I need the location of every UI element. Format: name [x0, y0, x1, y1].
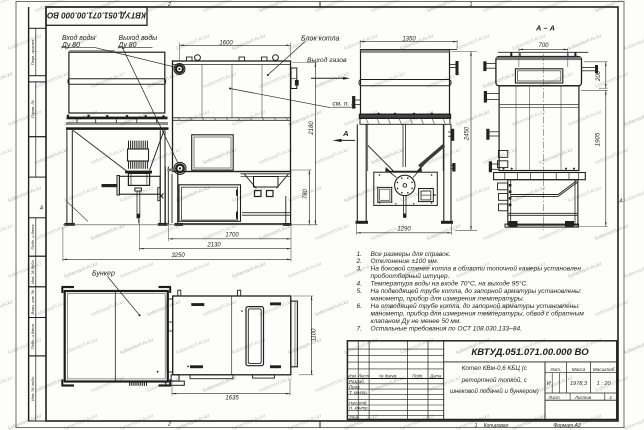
svg-text:Пров.: Пров.	[349, 385, 361, 390]
svg-text:Лист: Лист	[547, 395, 560, 400]
svg-text:1290: 1290	[397, 227, 411, 233]
svg-text:1100: 1100	[312, 328, 318, 342]
svg-text:Формат А3: Формат А3	[553, 423, 581, 429]
svg-text:Инв. № подл.: Инв. № подл.	[30, 376, 35, 401]
svg-text:2: 2	[167, 422, 171, 428]
svg-text:Температура воды на входе 70°С: Температура воды на входе 70°С, на выход…	[371, 280, 529, 288]
svg-text:Лит.: Лит.	[549, 367, 561, 372]
svg-text:1: 1	[469, 2, 472, 8]
svg-text:700: 700	[538, 43, 549, 49]
svg-text:780: 780	[303, 188, 309, 199]
svg-text:1 : 20: 1 : 20	[597, 381, 612, 387]
svg-text:пробоотборный штуцер.: пробоотборный штуцер.	[371, 272, 450, 280]
svg-text:1905: 1905	[596, 132, 602, 146]
svg-text:Справ. №: Справ. №	[30, 100, 35, 119]
svg-text:Инв. № дубл.: Инв. № дубл.	[30, 259, 35, 284]
svg-text:И: И	[547, 381, 551, 387]
svg-text:2180: 2180	[309, 121, 315, 136]
svg-text:Дата: Дата	[429, 373, 442, 378]
svg-text:1350: 1350	[402, 37, 416, 43]
svg-text:2: 2	[167, 2, 171, 8]
svg-text:№ докум.: № докум.	[379, 373, 397, 378]
svg-text:1635: 1635	[225, 396, 239, 402]
svg-text:На отводящей трубе котла, до з: На отводящей трубе котла, до запорной ар…	[371, 302, 581, 310]
svg-text:Котел КВм-0,6 КБЦ (с: Котел КВм-0,6 КБЦ (с	[462, 365, 528, 372]
svg-text:1.: 1.	[357, 251, 363, 258]
svg-text:А – А: А – А	[535, 23, 555, 32]
svg-text:Утв.: Утв.	[349, 415, 359, 420]
svg-text:6.: 6.	[357, 303, 363, 310]
svg-text:шнековой подачей и бункером): шнековой подачей и бункером)	[450, 388, 539, 395]
svg-text:КВТУД.051.071.00.000 ВО: КВТУД.051.071.00.000 ВО	[46, 10, 146, 19]
svg-text:Отклонение ±100 мм.: Отклонение ±100 мм.	[371, 258, 439, 265]
svg-text:А: А	[39, 206, 44, 212]
svg-text:Разраб.: Разраб.	[349, 379, 365, 384]
svg-text:Листов: Листов	[574, 395, 592, 400]
svg-text:2130: 2130	[206, 242, 221, 248]
svg-text:4.: 4.	[357, 281, 363, 288]
svg-text:5.: 5.	[357, 288, 363, 295]
svg-text:3250: 3250	[171, 253, 185, 259]
svg-text:Масса: Масса	[572, 367, 586, 372]
svg-text:манометр, прибор для измерения: манометр, прибор для измерения температу…	[371, 309, 585, 317]
svg-text:Бункер: Бункер	[92, 270, 115, 277]
svg-text:Масштаб: Масштаб	[593, 367, 615, 372]
svg-text:Лист: Лист	[357, 373, 369, 378]
svg-text:Остальные требования по ОСТ 10: Остальные требования по ОСТ 108.030.133–…	[371, 324, 523, 332]
svg-text:А: А	[618, 199, 623, 205]
svg-text:2.: 2.	[356, 258, 363, 265]
svg-text:1: 1	[474, 423, 477, 429]
svg-text:Подп. и дата: Подп. и дата	[30, 224, 35, 250]
svg-text:Блок котла: Блок котла	[301, 35, 339, 42]
svg-text:1978,3: 1978,3	[570, 381, 588, 387]
svg-text:Подп.: Подп.	[412, 373, 423, 378]
svg-text:На боковой стенке котла в обла: На боковой стенке котла в области топочн…	[371, 265, 582, 273]
svg-text:Копировал: Копировал	[484, 423, 509, 429]
svg-text:3.: 3.	[357, 266, 363, 273]
svg-text:Взам. инв. №: Взам. инв. №	[30, 289, 35, 314]
svg-text:Все размеры для справок.: Все размеры для справок.	[371, 250, 451, 258]
svg-text:манометр, прибор для измерения: манометр, прибор для измерения температу…	[371, 295, 525, 303]
svg-text:Т. контр.: Т. контр.	[349, 390, 368, 395]
svg-text:1700: 1700	[225, 232, 239, 238]
svg-text:А: А	[342, 129, 348, 138]
svg-text:ретортной топкой, с: ретортной топкой, с	[461, 376, 528, 384]
svg-text:На подводящей трубе котла, до: На подводящей трубе котла, до запорной а…	[371, 287, 582, 295]
svg-text:1: 1	[610, 395, 613, 400]
svg-text:200: 200	[596, 70, 602, 82]
svg-text:клапаном Ду не менее 50 мм.: клапаном Ду не менее 50 мм.	[371, 318, 462, 325]
svg-text:см. п. 3: см. п. 3	[333, 101, 356, 108]
svg-text:Перв. примен.: Перв. примен.	[30, 39, 35, 66]
svg-text:КВТУД.051.071.00.000 ВО: КВТУД.051.071.00.000 ВО	[471, 347, 589, 358]
svg-text:Подп. и дата: Подп. и дата	[30, 323, 35, 349]
svg-text:Изм.: Изм.	[348, 373, 357, 378]
svg-text:Н. контр.: Н. контр.	[349, 406, 369, 411]
svg-text:Нач.отд.: Нач.отд.	[349, 400, 368, 405]
svg-text:7.: 7.	[357, 325, 363, 332]
svg-text:2450: 2450	[464, 126, 470, 141]
svg-text:1600: 1600	[219, 40, 233, 46]
